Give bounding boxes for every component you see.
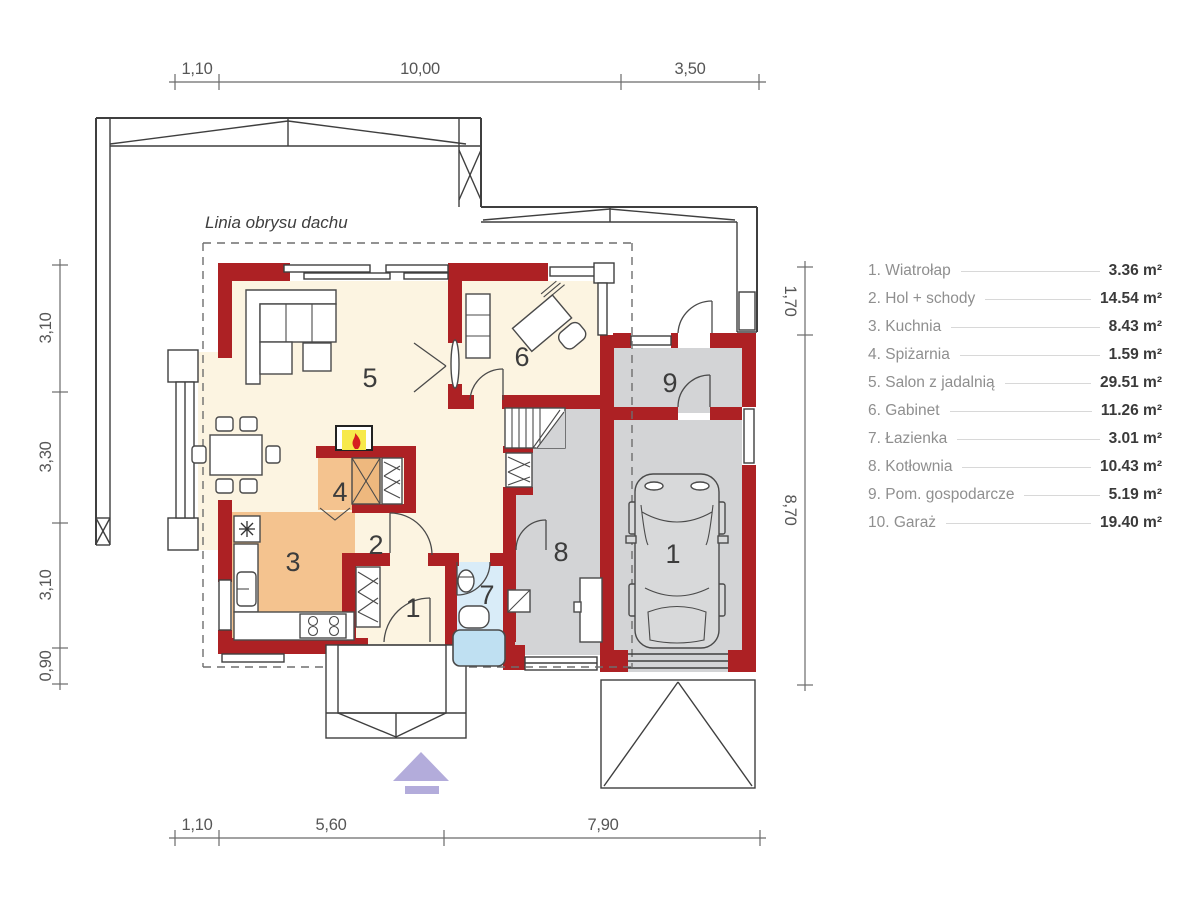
legend-leader-line <box>957 439 1099 440</box>
dim-right-1: 1,70 <box>781 286 799 317</box>
legend-row: 10. Garaż 19.40 m² <box>868 509 1162 537</box>
dim-left-2: 3,30 <box>37 441 55 472</box>
legend-room-area: 19.40 m² <box>1100 514 1162 532</box>
legend-row: 6. Gabinet 11.26 m² <box>868 397 1162 425</box>
staircase <box>505 408 565 448</box>
legend-room-name: 10. Garaż <box>868 514 936 532</box>
legend-row: 2. Hol + schody 14.54 m² <box>868 285 1162 313</box>
garage-apron <box>601 654 755 788</box>
legend-room-area: 11.26 m² <box>1101 402 1162 420</box>
legend-leader-line <box>951 327 1099 328</box>
legend-room-area: 8.43 m² <box>1109 318 1162 336</box>
room-label-pom-gospodarcze: 9 <box>662 368 677 398</box>
coffee-table <box>303 343 331 371</box>
legend-leader-line <box>1024 495 1099 496</box>
legend-leader-line <box>950 411 1092 412</box>
dim-left-4: 0,90 <box>37 650 55 681</box>
hall-wardrobe <box>356 567 380 627</box>
room-label-spizarnia: 4 <box>332 477 347 507</box>
legend-room-name: 9. Pom. gospodarcze <box>868 486 1014 504</box>
legend-leader-line <box>962 467 1091 468</box>
legend-room-name: 6. Gabinet <box>868 402 940 420</box>
fireplace-icon <box>336 426 372 450</box>
room-label-salon: 5 <box>362 363 377 393</box>
legend-room-name: 4. Spiżarnia <box>868 346 950 364</box>
legend-leader-line <box>960 355 1100 356</box>
entry-porch <box>326 645 466 738</box>
room-label-garaz: 1 <box>665 539 680 569</box>
legend-room-area: 5.19 m² <box>1109 486 1162 504</box>
legend-row: 7. Łazienka 3.01 m² <box>868 425 1162 453</box>
dim-right-2: 8,70 <box>781 495 799 526</box>
floor-plan-page: 1 2 3 4 5 6 7 8 9 1 Linia obrysu dachu <box>0 0 1200 900</box>
legend-room-name: 1. Wiatrołap <box>868 262 951 280</box>
legend-row: 4. Spiżarnia 1.59 m² <box>868 341 1162 369</box>
legend-row: 3. Kuchnia 8.43 m² <box>868 313 1162 341</box>
understair-closet <box>506 453 532 487</box>
legend-room-area: 3.01 m² <box>1109 430 1162 448</box>
legend-row: 8. Kotłownia 10.43 m² <box>868 453 1162 481</box>
room-label-kuchnia: 3 <box>285 547 300 577</box>
legend-row: 9. Pom. gospodarcze 5.19 m² <box>868 481 1162 509</box>
dim-bottom-1: 1,10 <box>182 816 213 834</box>
legend-leader-line <box>961 271 1100 272</box>
entrance-arrow-icon <box>393 752 449 794</box>
room-label-kotlownia: 8 <box>553 537 568 567</box>
legend-row: 5. Salon z jadalnią 29.51 m² <box>868 369 1162 397</box>
legend-room-name: 7. Łazienka <box>868 430 947 448</box>
legend-leader-line <box>946 523 1091 524</box>
legend-room-area: 1.59 m² <box>1109 346 1162 364</box>
legend-room-area: 29.51 m² <box>1100 374 1162 392</box>
dim-top-2: 10,00 <box>400 60 440 78</box>
dim-bottom-2: 5,60 <box>316 816 347 834</box>
dim-bottom-3: 7,90 <box>588 816 619 834</box>
legend-room-name: 5. Salon z jadalnią <box>868 374 995 392</box>
legend-room-name: 8. Kotłownia <box>868 458 952 476</box>
legend-room-area: 14.54 m² <box>1100 290 1162 308</box>
dim-top-1: 1,10 <box>182 60 213 78</box>
room-legend: 1. Wiatrołap 3.36 m² 2. Hol + schody 14.… <box>868 257 1162 537</box>
fridge-snowflake-icon <box>239 521 255 537</box>
room-label-gabinet: 6 <box>514 342 529 372</box>
room-label-lazienka: 7 <box>479 580 494 610</box>
legend-room-name: 3. Kuchnia <box>868 318 941 336</box>
dim-top-3: 3,50 <box>675 60 706 78</box>
legend-leader-line <box>985 299 1091 300</box>
dim-left-3: 3,10 <box>37 569 55 600</box>
legend-room-name: 2. Hol + schody <box>868 290 975 308</box>
dim-left-1: 3,10 <box>37 312 55 343</box>
legend-room-area: 3.36 m² <box>1109 262 1162 280</box>
legend-leader-line <box>1005 383 1091 384</box>
legend-row: 1. Wiatrołap 3.36 m² <box>868 257 1162 285</box>
roof-outline-note: Linia obrysu dachu <box>205 213 348 232</box>
legend-room-area: 10.43 m² <box>1100 458 1162 476</box>
room-label-wiatrolap: 1 <box>405 593 420 623</box>
room-label-hol: 2 <box>368 530 383 560</box>
